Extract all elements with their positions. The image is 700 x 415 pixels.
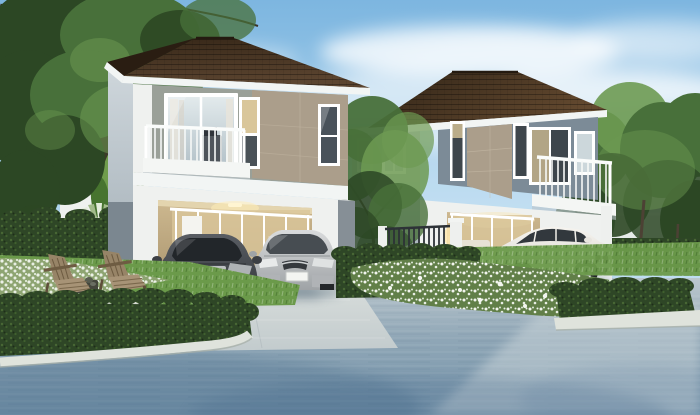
scene-canvas bbox=[0, 0, 700, 415]
interior-lit-panel bbox=[182, 216, 202, 236]
right-window-small bbox=[513, 123, 529, 179]
left-window-narrow bbox=[239, 97, 260, 169]
left-window-right bbox=[318, 104, 340, 166]
architectural-rendering bbox=[0, 0, 700, 415]
license-plate bbox=[286, 272, 308, 281]
taupe-panel-right bbox=[467, 124, 512, 199]
right-window-corner bbox=[574, 131, 595, 175]
right-window-narrow bbox=[450, 121, 465, 181]
